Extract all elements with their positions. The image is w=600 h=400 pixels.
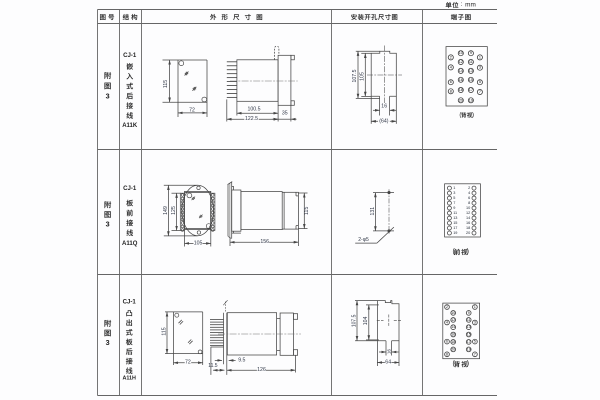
svg-text:11: 11	[469, 60, 473, 64]
svg-text:mm: mm	[465, 2, 476, 9]
svg-text:4: 4	[450, 65, 452, 69]
svg-text:CJ-1: CJ-1	[123, 185, 137, 192]
svg-text:10: 10	[451, 311, 455, 315]
svg-text:104: 104	[363, 316, 369, 325]
svg-text:7: 7	[479, 90, 481, 94]
svg-text:5: 5	[474, 340, 476, 344]
svg-text:19: 19	[469, 98, 473, 102]
svg-text:19: 19	[453, 231, 457, 235]
svg-text:12: 12	[459, 60, 463, 64]
svg-text:5: 5	[479, 80, 481, 84]
svg-text:A11Q: A11Q	[122, 241, 138, 247]
svg-text:18: 18	[466, 226, 470, 230]
svg-text:15: 15	[469, 78, 473, 82]
svg-text:14: 14	[451, 325, 455, 329]
svg-text:3: 3	[106, 92, 110, 101]
svg-text:1: 1	[474, 305, 476, 309]
svg-text:18: 18	[459, 88, 463, 92]
svg-text:6: 6	[446, 340, 448, 344]
svg-text:7: 7	[453, 201, 455, 205]
svg-text:156: 156	[260, 239, 269, 245]
svg-text:18: 18	[451, 340, 455, 344]
svg-text::: :	[460, 1, 462, 8]
svg-text:A11H: A11H	[122, 376, 136, 382]
svg-text:100.5: 100.5	[248, 107, 261, 113]
svg-text:14: 14	[459, 69, 463, 73]
svg-text:8: 8	[450, 89, 452, 93]
svg-text:105: 105	[360, 72, 366, 81]
svg-text:107.5: 107.5	[351, 314, 357, 327]
svg-text:115: 115	[163, 80, 169, 88]
svg-text:6: 6	[468, 196, 470, 200]
svg-text:2: 2	[468, 186, 470, 190]
svg-text:115: 115	[304, 207, 310, 215]
svg-text:3: 3	[474, 321, 476, 325]
svg-text:7: 7	[474, 352, 476, 356]
svg-text:149: 149	[163, 206, 169, 215]
svg-text:(: (	[453, 249, 456, 256]
svg-text:): )	[467, 249, 469, 256]
svg-text:15: 15	[453, 221, 457, 225]
svg-text:20: 20	[459, 98, 463, 102]
svg-text:9: 9	[468, 311, 470, 315]
svg-text:): )	[467, 361, 469, 368]
svg-text:3: 3	[453, 191, 455, 195]
svg-text:126: 126	[257, 367, 266, 373]
svg-text:CJ-1: CJ-1	[123, 299, 137, 306]
svg-text:1: 1	[479, 55, 481, 59]
svg-text:9: 9	[470, 51, 472, 55]
svg-text:20: 20	[451, 347, 455, 351]
svg-text:13: 13	[453, 216, 457, 220]
svg-text:14: 14	[466, 216, 470, 220]
svg-text:6: 6	[450, 80, 452, 84]
svg-text:122.5: 122.5	[245, 116, 258, 122]
svg-text:(: (	[459, 112, 461, 119]
svg-text:3: 3	[106, 338, 110, 347]
svg-text:16: 16	[386, 349, 391, 355]
svg-text:16: 16	[466, 221, 470, 225]
svg-text:16: 16	[451, 333, 455, 337]
svg-text:72: 72	[185, 360, 191, 366]
svg-text:35: 35	[282, 111, 288, 117]
svg-text:): )	[472, 112, 474, 119]
svg-text:17: 17	[453, 226, 457, 230]
svg-text:105: 105	[194, 240, 203, 246]
svg-text:8: 8	[468, 201, 470, 205]
svg-text:2: 2	[446, 305, 448, 309]
svg-text:2-φ5: 2-φ5	[358, 237, 369, 243]
svg-text:16: 16	[381, 103, 387, 109]
svg-text:CJ-1: CJ-1	[123, 52, 137, 59]
svg-text:17: 17	[467, 340, 471, 344]
svg-text:11: 11	[453, 211, 457, 215]
svg-text:12: 12	[466, 211, 470, 215]
svg-text:(64): (64)	[379, 118, 388, 124]
svg-text:15: 15	[467, 333, 471, 337]
svg-text:A11K: A11K	[122, 123, 138, 129]
svg-text:8: 8	[446, 352, 448, 356]
svg-text:19: 19	[467, 347, 471, 351]
svg-text:9: 9	[453, 206, 455, 210]
svg-text:64: 64	[385, 360, 391, 366]
svg-text:12: 12	[451, 318, 455, 322]
svg-text:107.5: 107.5	[352, 69, 358, 82]
svg-text:115: 115	[161, 327, 167, 335]
svg-text:17: 17	[469, 88, 473, 92]
svg-text:10: 10	[459, 51, 463, 55]
svg-text:4: 4	[468, 191, 470, 195]
svg-text:72: 72	[189, 107, 195, 113]
svg-text:1: 1	[453, 186, 455, 190]
svg-text:125: 125	[171, 206, 177, 215]
svg-text:16: 16	[459, 78, 463, 82]
svg-text:3: 3	[106, 220, 110, 229]
svg-text:5: 5	[453, 196, 455, 200]
svg-text:11: 11	[467, 318, 471, 322]
svg-text:131: 131	[370, 207, 376, 216]
svg-text:11.5: 11.5	[208, 363, 218, 369]
svg-text:13: 13	[469, 69, 473, 73]
svg-text:2: 2	[450, 55, 452, 59]
svg-text:9.5: 9.5	[238, 357, 245, 363]
svg-text:13: 13	[467, 325, 471, 329]
svg-text:10: 10	[466, 206, 470, 210]
svg-text:4: 4	[446, 321, 448, 325]
svg-text:20: 20	[466, 231, 470, 235]
svg-text:3: 3	[479, 66, 481, 70]
